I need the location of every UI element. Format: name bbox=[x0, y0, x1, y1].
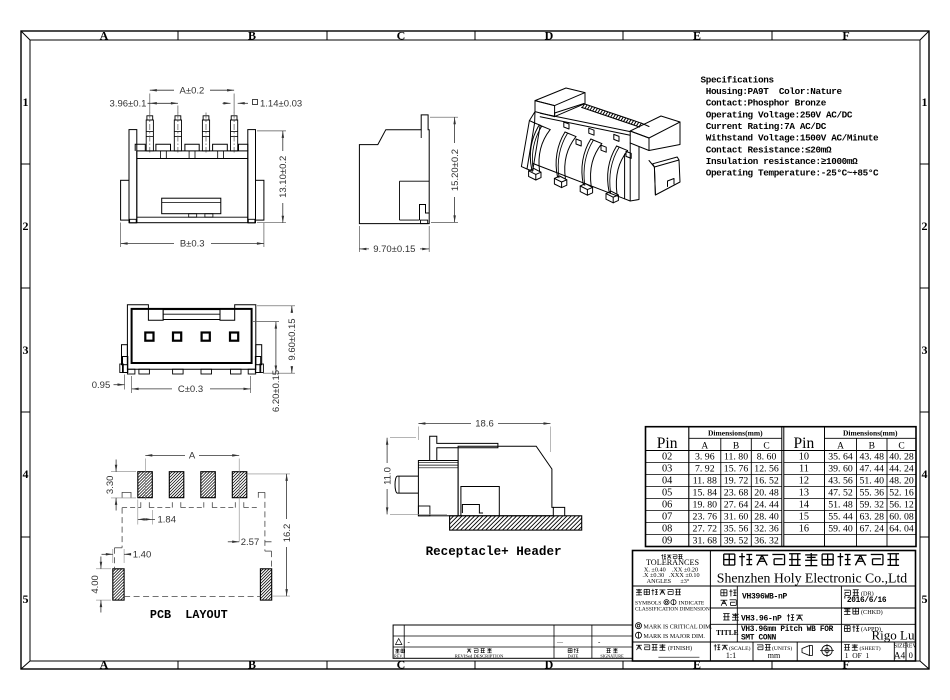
svg-text:E: E bbox=[693, 658, 701, 672]
svg-text:15. 76: 15. 76 bbox=[724, 464, 749, 475]
svg-text:C: C bbox=[397, 29, 406, 43]
svg-text:19. 80: 19. 80 bbox=[693, 500, 718, 511]
svg-text:32. 36: 32. 36 bbox=[754, 524, 779, 535]
svg-text:0.95: 0.95 bbox=[92, 380, 111, 391]
svg-text:MARK IS MAJOR DIM.: MARK IS MAJOR DIM. bbox=[644, 634, 706, 640]
svg-text:7. 92: 7. 92 bbox=[695, 464, 715, 475]
svg-text:27. 64: 27. 64 bbox=[724, 500, 749, 511]
svg-text:1.14±0.03: 1.14±0.03 bbox=[260, 99, 302, 110]
svg-text:A: A bbox=[701, 441, 708, 451]
svg-text:12: 12 bbox=[799, 476, 809, 487]
svg-text:SYMBOLS: SYMBOLS bbox=[635, 600, 661, 606]
svg-text:39. 52: 39. 52 bbox=[724, 536, 749, 547]
svg-text:14: 14 bbox=[799, 500, 809, 511]
svg-text:ANGLES ±3°: ANGLES ±3° bbox=[647, 578, 690, 585]
svg-text:51. 40: 51. 40 bbox=[860, 476, 885, 487]
svg-text:16. 52: 16. 52 bbox=[754, 476, 779, 487]
svg-text:07: 07 bbox=[662, 512, 672, 523]
svg-text:B: B bbox=[248, 29, 256, 43]
svg-text:1: 1 bbox=[922, 95, 928, 109]
svg-text:24. 44: 24. 44 bbox=[754, 500, 779, 511]
svg-text:A4: A4 bbox=[894, 652, 906, 662]
svg-text:60. 08: 60. 08 bbox=[889, 512, 914, 523]
svg-text:2.57: 2.57 bbox=[241, 537, 260, 548]
svg-text:(CHKD): (CHKD) bbox=[861, 609, 883, 616]
svg-text:Operating Temperature:-25°C~+8: Operating Temperature:-25°C~+85°C bbox=[701, 168, 880, 179]
svg-text:2: 2 bbox=[23, 219, 29, 233]
svg-text:REV.: REV. bbox=[394, 654, 403, 659]
svg-text:1 OF 1: 1 OF 1 bbox=[845, 651, 870, 660]
svg-text:Withstand Voltage:1500V AC/Min: Withstand Voltage:1500V AC/Minute bbox=[701, 133, 880, 144]
svg-text:09: 09 bbox=[662, 536, 672, 547]
svg-text:—: — bbox=[556, 640, 564, 646]
svg-text:Operating Voltage:250V AC/DC: Operating Voltage:250V AC/DC bbox=[701, 109, 853, 120]
svg-text:Current Rating:7A AC/DC: Current Rating:7A AC/DC bbox=[701, 121, 827, 132]
svg-text:03: 03 bbox=[662, 464, 672, 475]
svg-text:31. 68: 31. 68 bbox=[693, 536, 718, 547]
svg-text:40. 28: 40. 28 bbox=[889, 452, 914, 463]
svg-text:Pin: Pin bbox=[657, 435, 678, 452]
svg-text:SIGNATURE: SIGNATURE bbox=[600, 654, 624, 659]
svg-text:15. 84: 15. 84 bbox=[693, 488, 718, 499]
svg-text:Housing:PA9T Color:Nature: Housing:PA9T Color:Nature bbox=[701, 86, 843, 97]
svg-text:35. 64: 35. 64 bbox=[828, 452, 853, 463]
svg-text:A: A bbox=[100, 29, 109, 43]
svg-text:36. 32: 36. 32 bbox=[754, 536, 779, 547]
svg-text:VH3.96-nP: VH3.96-nP bbox=[741, 615, 782, 624]
svg-text:5: 5 bbox=[23, 592, 29, 606]
svg-text:04: 04 bbox=[662, 476, 672, 487]
svg-text:C: C bbox=[397, 658, 406, 672]
svg-text:4: 4 bbox=[922, 467, 928, 481]
svg-text:35. 56: 35. 56 bbox=[724, 524, 749, 535]
svg-text:39. 60: 39. 60 bbox=[828, 464, 853, 475]
svg-text:19. 72: 19. 72 bbox=[724, 476, 749, 487]
svg-text:(FINISH): (FINISH) bbox=[668, 645, 692, 652]
svg-text:16: 16 bbox=[799, 524, 809, 535]
svg-text:27. 72: 27. 72 bbox=[693, 524, 718, 535]
svg-text:Rigo Lu: Rigo Lu bbox=[872, 628, 915, 643]
svg-text:Dimensions(mm): Dimensions(mm) bbox=[708, 429, 763, 438]
svg-text:Insulation resistance:≥1000mΩ: Insulation resistance:≥1000mΩ bbox=[701, 156, 859, 167]
svg-text:SMT CONN: SMT CONN bbox=[741, 634, 777, 642]
svg-text:59. 40: 59. 40 bbox=[828, 524, 853, 535]
svg-text:Shenzhen Holy Electronic Co.,L: Shenzhen Holy Electronic Co.,Ltd bbox=[717, 570, 908, 585]
svg-text:47. 44: 47. 44 bbox=[860, 464, 885, 475]
svg-text:CLASSIFICATION DIMENSION: CLASSIFICATION DIMENSION bbox=[635, 606, 710, 612]
svg-text:11.0: 11.0 bbox=[382, 467, 393, 485]
svg-text:08: 08 bbox=[662, 524, 672, 535]
svg-text:55. 36: 55. 36 bbox=[860, 488, 885, 499]
svg-text:18.6: 18.6 bbox=[475, 419, 494, 430]
svg-text:43. 48: 43. 48 bbox=[860, 452, 885, 463]
svg-text:06: 06 bbox=[662, 500, 672, 511]
svg-text:B: B bbox=[733, 441, 739, 451]
svg-text:48. 20: 48. 20 bbox=[889, 476, 914, 487]
svg-text:3: 3 bbox=[23, 343, 29, 357]
svg-text:1.40: 1.40 bbox=[133, 549, 152, 560]
svg-text:D: D bbox=[545, 29, 554, 43]
svg-text:REV: REV bbox=[905, 644, 917, 650]
svg-text:20. 48: 20. 48 bbox=[754, 488, 779, 499]
svg-text:Dimensions(mm): Dimensions(mm) bbox=[843, 429, 898, 438]
svg-text:A: A bbox=[837, 441, 844, 451]
svg-text:44. 24: 44. 24 bbox=[889, 464, 914, 475]
svg-text:31. 60: 31. 60 bbox=[724, 512, 749, 523]
svg-text:56. 12: 56. 12 bbox=[889, 500, 914, 511]
svg-text:Specifications: Specifications bbox=[701, 74, 775, 85]
svg-text:C: C bbox=[898, 441, 904, 451]
svg-text:Receptacle+ Header: Receptacle+ Header bbox=[426, 545, 562, 559]
svg-text:A±0.2: A±0.2 bbox=[180, 85, 205, 96]
svg-text:12. 56: 12. 56 bbox=[754, 464, 779, 475]
svg-text:9.60±0.15: 9.60±0.15 bbox=[287, 318, 298, 360]
svg-text:16.2: 16.2 bbox=[282, 524, 293, 543]
svg-text:F: F bbox=[842, 29, 849, 43]
svg-text:B: B bbox=[248, 658, 256, 672]
svg-text:E: E bbox=[693, 29, 701, 43]
svg-text:51. 48: 51. 48 bbox=[828, 500, 853, 511]
svg-text:59. 32: 59. 32 bbox=[860, 500, 885, 511]
svg-text:C: C bbox=[763, 441, 769, 451]
svg-text:8. 60: 8. 60 bbox=[757, 452, 777, 463]
svg-text:23. 68: 23. 68 bbox=[724, 488, 749, 499]
svg-text:TITLE: TITLE bbox=[716, 628, 739, 637]
svg-text:10: 10 bbox=[799, 452, 809, 463]
svg-text:3: 3 bbox=[922, 343, 928, 357]
svg-text:Pin: Pin bbox=[794, 435, 815, 452]
svg-text:mm: mm bbox=[768, 651, 781, 660]
svg-text:64. 04: 64. 04 bbox=[889, 524, 914, 535]
svg-text:47. 52: 47. 52 bbox=[828, 488, 853, 499]
svg-text:0: 0 bbox=[909, 650, 913, 660]
svg-text:11. 88: 11. 88 bbox=[693, 476, 717, 487]
svg-text:4: 4 bbox=[23, 467, 29, 481]
svg-text:67. 24: 67. 24 bbox=[860, 524, 885, 535]
svg-text:A: A bbox=[189, 451, 196, 462]
svg-text:5: 5 bbox=[922, 592, 928, 606]
svg-text:28. 40: 28. 40 bbox=[754, 512, 779, 523]
svg-text:B: B bbox=[869, 441, 875, 451]
svg-text:15.20±0.2: 15.20±0.2 bbox=[450, 149, 461, 191]
svg-text:63. 28: 63. 28 bbox=[860, 512, 885, 523]
svg-text:C±0.3: C±0.3 bbox=[178, 384, 203, 395]
svg-text:VH396WB-nP: VH396WB-nP bbox=[742, 593, 788, 602]
svg-text:4.00: 4.00 bbox=[90, 575, 101, 594]
svg-text:B±0.3: B±0.3 bbox=[180, 239, 205, 250]
svg-text:A: A bbox=[100, 658, 109, 672]
svg-text:D: D bbox=[545, 658, 554, 672]
svg-text:REVISed DESCRIPTION: REVISed DESCRIPTION bbox=[455, 654, 504, 659]
svg-text:MARK IS CRITICAL DIM.: MARK IS CRITICAL DIM. bbox=[644, 624, 713, 630]
svg-text:23. 76: 23. 76 bbox=[693, 512, 718, 523]
svg-text:13: 13 bbox=[799, 488, 809, 499]
svg-text:Contact:Phosphor Bronze: Contact:Phosphor Bronze bbox=[701, 98, 827, 109]
svg-text:11. 80: 11. 80 bbox=[724, 452, 748, 463]
svg-text:DATE: DATE bbox=[568, 654, 579, 659]
svg-text:1: 1 bbox=[23, 95, 29, 109]
svg-text:02: 02 bbox=[662, 452, 672, 463]
svg-text:'2016/6/16: '2016/6/16 bbox=[843, 597, 887, 605]
svg-text:1:1: 1:1 bbox=[726, 651, 736, 660]
svg-text:3. 96: 3. 96 bbox=[695, 452, 715, 463]
svg-text:13.10±0.2: 13.10±0.2 bbox=[278, 156, 289, 198]
svg-text:INDICATE: INDICATE bbox=[679, 600, 705, 606]
svg-text:6.20±0.15: 6.20±0.15 bbox=[271, 370, 282, 412]
svg-text:Contact Resistance:≤20mΩ: Contact Resistance:≤20mΩ bbox=[701, 144, 832, 155]
svg-text:05: 05 bbox=[662, 488, 672, 499]
svg-text:15: 15 bbox=[799, 512, 809, 523]
svg-text:VH3.96mm Pitch WB FOR: VH3.96mm Pitch WB FOR bbox=[741, 626, 834, 634]
svg-text:43. 56: 43. 56 bbox=[828, 476, 853, 487]
svg-text:2: 2 bbox=[922, 219, 928, 233]
svg-text:52. 16: 52. 16 bbox=[889, 488, 914, 499]
svg-text:PCB LAYOUT: PCB LAYOUT bbox=[150, 608, 228, 622]
svg-text:11: 11 bbox=[799, 464, 809, 475]
svg-text:3.30: 3.30 bbox=[105, 476, 116, 495]
svg-text:3.96±0.1: 3.96±0.1 bbox=[110, 98, 147, 109]
svg-text:1.84: 1.84 bbox=[158, 515, 177, 526]
svg-text:55. 44: 55. 44 bbox=[828, 512, 853, 523]
svg-text:9.70±0.15: 9.70±0.15 bbox=[373, 244, 415, 255]
